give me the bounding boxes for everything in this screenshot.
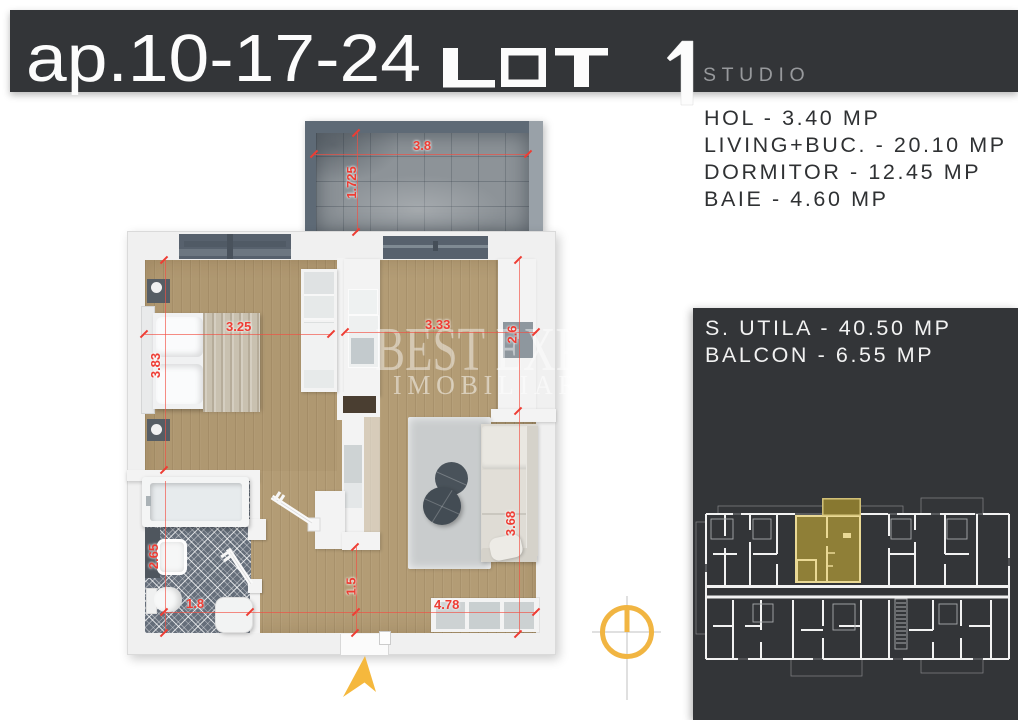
svg-text:IMOBILIARE: IMOBILIARE xyxy=(393,370,603,400)
